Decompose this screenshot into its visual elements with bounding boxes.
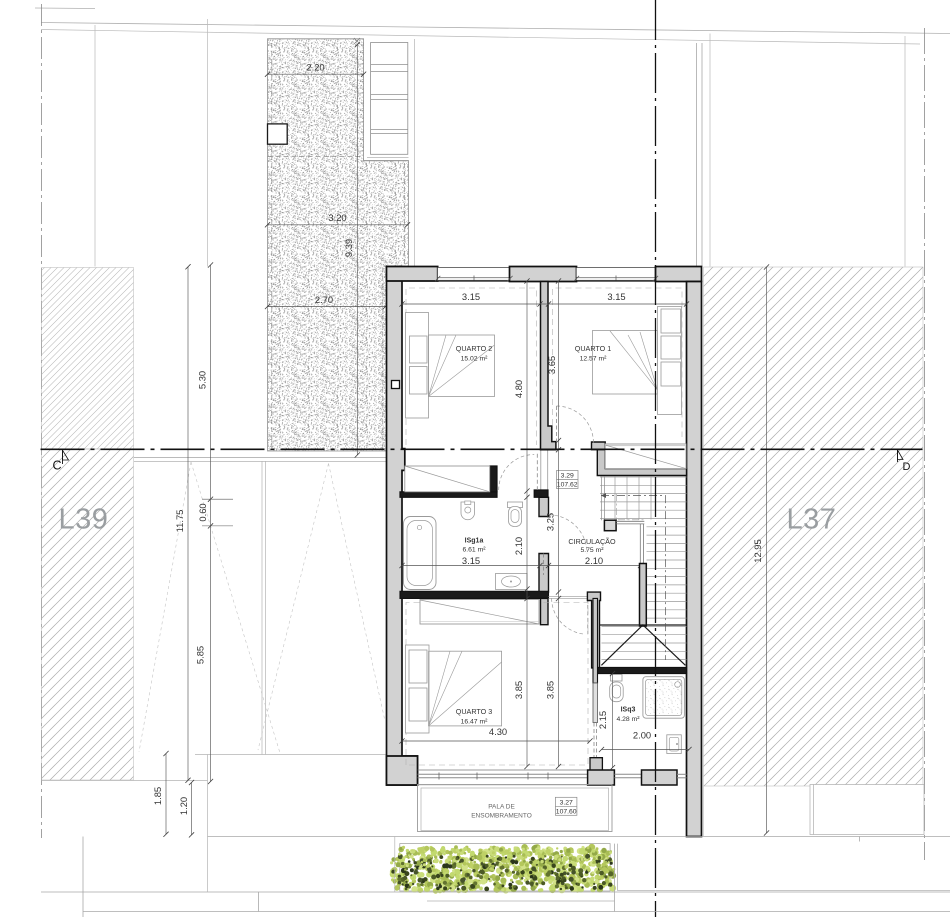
svg-text:4.30: 4.30 — [489, 726, 507, 737]
svg-text:3.29: 3.29 — [561, 473, 574, 480]
svg-text:3.27: 3.27 — [560, 799, 573, 806]
svg-text:C: C — [52, 459, 61, 473]
svg-text:ENSOMBRAMENTO: ENSOMBRAMENTO — [471, 813, 532, 820]
svg-text:2.20: 2.20 — [306, 62, 324, 73]
svg-text:CIRCULAÇÃO: CIRCULAÇÃO — [568, 537, 616, 546]
svg-text:QUARTO 2: QUARTO 2 — [456, 344, 492, 353]
svg-text:9.39: 9.39 — [343, 239, 354, 257]
svg-text:2.10: 2.10 — [585, 555, 603, 566]
svg-text:ISq3: ISq3 — [621, 707, 636, 714]
svg-text:2.10: 2.10 — [513, 537, 524, 555]
svg-text:1.20: 1.20 — [178, 797, 189, 815]
svg-text:1.85: 1.85 — [152, 787, 163, 805]
svg-text:QUARTO 1: QUARTO 1 — [575, 344, 611, 353]
svg-text:5.85: 5.85 — [195, 646, 206, 664]
svg-text:ISg1a: ISg1a — [465, 538, 484, 545]
svg-text:107.60: 107.60 — [556, 809, 577, 816]
svg-text:3.15: 3.15 — [462, 291, 480, 302]
svg-text:4.28 m²: 4.28 m² — [616, 716, 640, 723]
svg-text:L39: L39 — [59, 504, 109, 536]
svg-text:3.20: 3.20 — [328, 212, 346, 223]
svg-text:2.70: 2.70 — [315, 294, 333, 305]
svg-text:0.60: 0.60 — [197, 503, 208, 521]
svg-text:L37: L37 — [787, 504, 837, 536]
svg-text:6.61 m²: 6.61 m² — [462, 547, 486, 554]
svg-text:PALA DE: PALA DE — [488, 804, 515, 811]
svg-text:3.25: 3.25 — [545, 513, 556, 531]
svg-text:3.85: 3.85 — [513, 681, 524, 699]
svg-text:16.47 m²: 16.47 m² — [461, 719, 489, 726]
svg-text:3.65: 3.65 — [546, 356, 557, 374]
svg-text:15.02 m²: 15.02 m² — [461, 356, 489, 363]
svg-text:5.75 m²: 5.75 m² — [580, 547, 604, 554]
svg-text:11.75: 11.75 — [174, 510, 185, 533]
svg-text:2.00: 2.00 — [633, 730, 651, 741]
svg-text:107.62: 107.62 — [557, 482, 578, 489]
svg-text:QUARTO 3: QUARTO 3 — [456, 707, 492, 716]
svg-text:5.30: 5.30 — [197, 371, 208, 389]
svg-text:3.85: 3.85 — [545, 681, 556, 699]
svg-text:12.57 m²: 12.57 m² — [580, 356, 608, 363]
svg-text:4.80: 4.80 — [513, 380, 524, 398]
svg-text:2.15: 2.15 — [597, 711, 608, 729]
svg-text:D: D — [903, 461, 911, 473]
svg-text:12.95: 12.95 — [752, 539, 763, 562]
svg-text:3.15: 3.15 — [462, 555, 480, 566]
svg-text:3.15: 3.15 — [607, 291, 625, 302]
